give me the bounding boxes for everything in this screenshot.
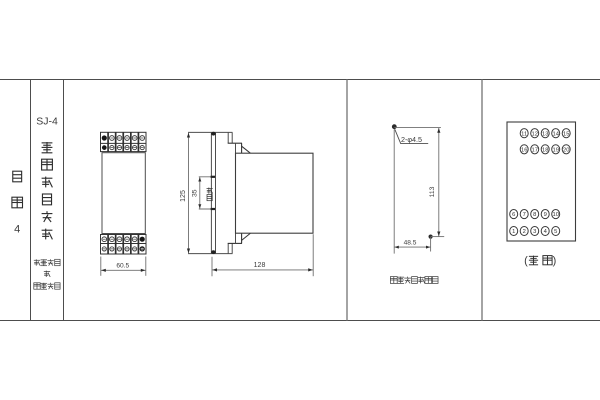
svg-text:128: 128 xyxy=(254,262,266,269)
svg-text:4: 4 xyxy=(544,229,548,235)
svg-text:15: 15 xyxy=(563,131,569,137)
svg-text:6: 6 xyxy=(512,212,515,218)
svg-text:1: 1 xyxy=(512,229,515,235)
svg-text:125: 125 xyxy=(180,190,187,202)
svg-text:14: 14 xyxy=(552,131,559,137)
svg-text:(: ( xyxy=(524,255,528,267)
svg-text:9: 9 xyxy=(544,212,547,218)
svg-text:7: 7 xyxy=(523,212,526,218)
svg-text:17: 17 xyxy=(531,147,537,153)
svg-text:5: 5 xyxy=(554,229,557,235)
svg-text:11: 11 xyxy=(521,131,527,137)
svg-text:2-φ4.5: 2-φ4.5 xyxy=(401,135,422,144)
svg-text:48.5: 48.5 xyxy=(404,240,417,247)
svg-text:3: 3 xyxy=(533,229,536,235)
svg-text:): ) xyxy=(553,255,557,267)
svg-text:8: 8 xyxy=(533,212,536,218)
svg-text:SJ-4: SJ-4 xyxy=(36,116,58,128)
svg-text:2: 2 xyxy=(523,229,526,235)
svg-text:113: 113 xyxy=(429,186,436,197)
svg-text:13: 13 xyxy=(542,131,548,137)
svg-text:20: 20 xyxy=(563,147,569,153)
svg-text:35: 35 xyxy=(191,189,198,197)
svg-text:60.5: 60.5 xyxy=(116,262,129,269)
svg-text:10: 10 xyxy=(552,212,558,218)
svg-text:12: 12 xyxy=(531,131,537,137)
svg-text:16: 16 xyxy=(521,147,527,153)
svg-text:18: 18 xyxy=(542,147,548,153)
svg-text:19: 19 xyxy=(552,147,558,153)
svg-text:4: 4 xyxy=(14,224,20,236)
